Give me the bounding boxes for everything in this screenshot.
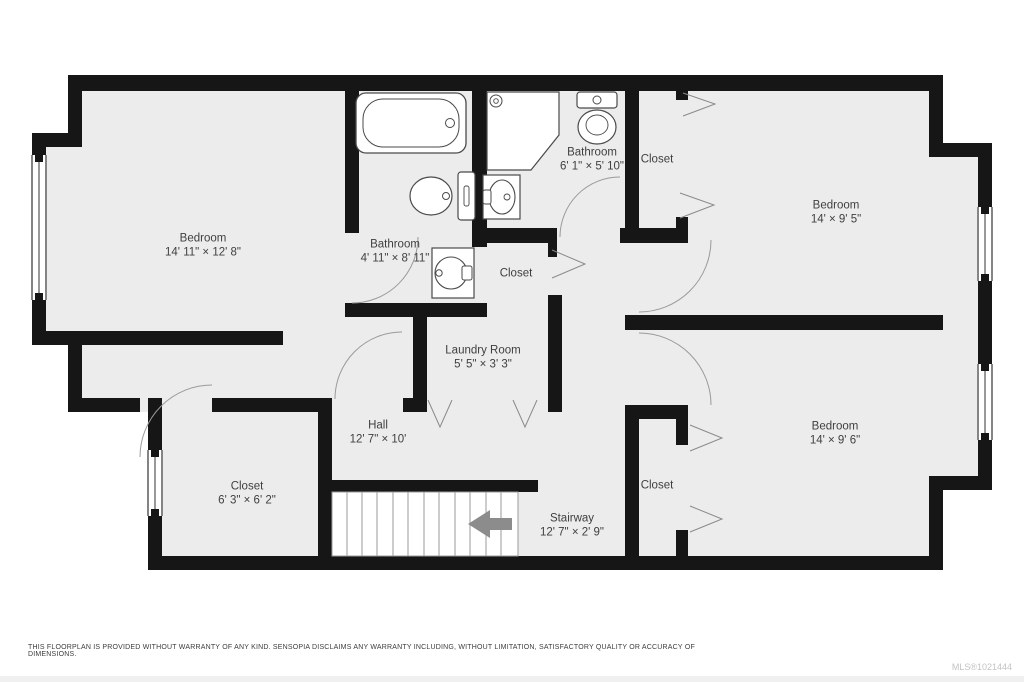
stairway-treads (332, 492, 518, 556)
room-label-stairway: Stairway 12' 7" × 2' 9" (540, 513, 604, 540)
window-icon (147, 450, 163, 516)
bathtub-icon (356, 93, 466, 153)
room-label-hall: Hall 12' 7" × 10' (350, 420, 407, 447)
room-label-bedroom-top-right: Bedroom 14' × 9' 5" (811, 200, 861, 227)
room-label-bedroom-bottom-right: Bedroom 14' × 9' 6" (810, 421, 860, 448)
mls-number: MLS®1021444 (952, 662, 1012, 672)
room-label-closet-bottom-left: Closet 6' 3" × 6' 2" (218, 481, 276, 508)
floorplan-drawing (0, 0, 1024, 682)
room-label-bedroom-left: Bedroom 14' 11" × 12' 8" (165, 233, 241, 260)
window-icon (977, 207, 993, 281)
toilet-icon (577, 92, 617, 144)
window-icon (977, 364, 993, 440)
room-label-closet-mid: Closet (500, 267, 533, 281)
disclaimer-text: THIS FLOORPLAN IS PROVIDED WITHOUT WARRA… (28, 644, 728, 658)
sink-icon (432, 248, 474, 298)
sink-icon (483, 175, 520, 219)
room-label-bathroom-mid: Bathroom 4' 11" × 8' 11" (361, 239, 430, 266)
window-icon (31, 155, 47, 300)
room-label-closet-bottom-right: Closet (641, 479, 674, 493)
room-label-laundry: Laundry Room 5' 5" × 3' 3" (445, 345, 520, 372)
room-label-closet-top: Closet (641, 153, 674, 167)
room-label-bathroom-top: Bathroom 6' 1" × 5' 10" (560, 147, 624, 174)
bottom-strip (0, 676, 1024, 682)
floorplan-page: Bedroom 14' 11" × 12' 8" Bathroom 4' 11"… (0, 0, 1024, 682)
